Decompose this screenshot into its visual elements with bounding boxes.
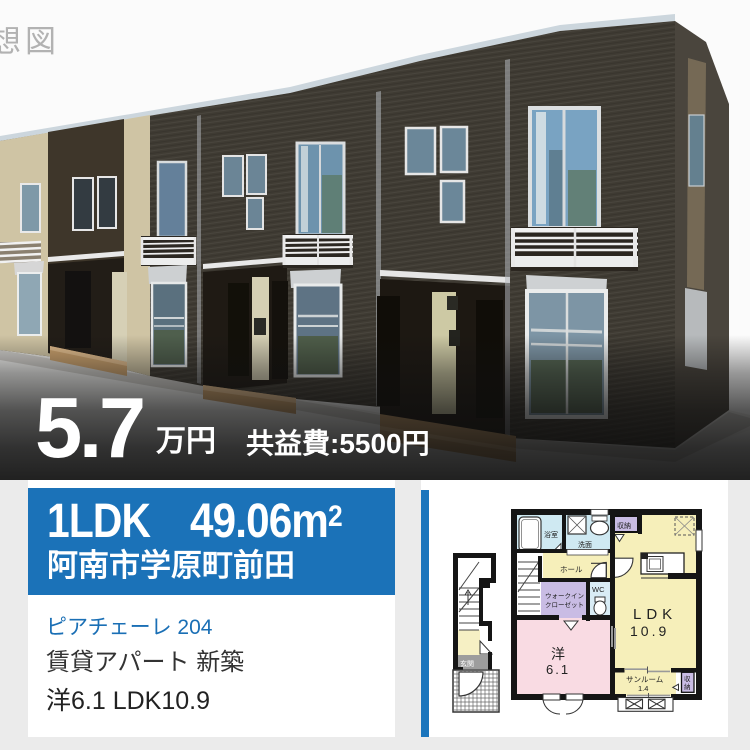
svg-text:ウォークイン: ウォークイン <box>545 592 584 600</box>
svg-text:玄関: 玄関 <box>460 659 474 668</box>
svg-text:洋: 洋 <box>551 646 565 662</box>
svg-text:クローゼット: クローゼット <box>545 600 584 609</box>
svg-text:10.9: 10.9 <box>630 623 669 639</box>
svg-text:サンルーム: サンルーム <box>626 675 663 684</box>
svg-text:納: 納 <box>684 682 691 691</box>
svg-text:1.4: 1.4 <box>638 684 648 693</box>
svg-text:LDK: LDK <box>633 606 677 623</box>
svg-text:6.1: 6.1 <box>546 662 570 677</box>
svg-text:WC: WC <box>592 585 605 594</box>
svg-text:収納: 収納 <box>617 521 631 530</box>
svg-text:浴室: 浴室 <box>544 530 558 539</box>
svg-text:収: 収 <box>684 675 691 683</box>
svg-text:ホール: ホール <box>560 565 583 574</box>
svg-text:洗面: 洗面 <box>578 540 592 549</box>
